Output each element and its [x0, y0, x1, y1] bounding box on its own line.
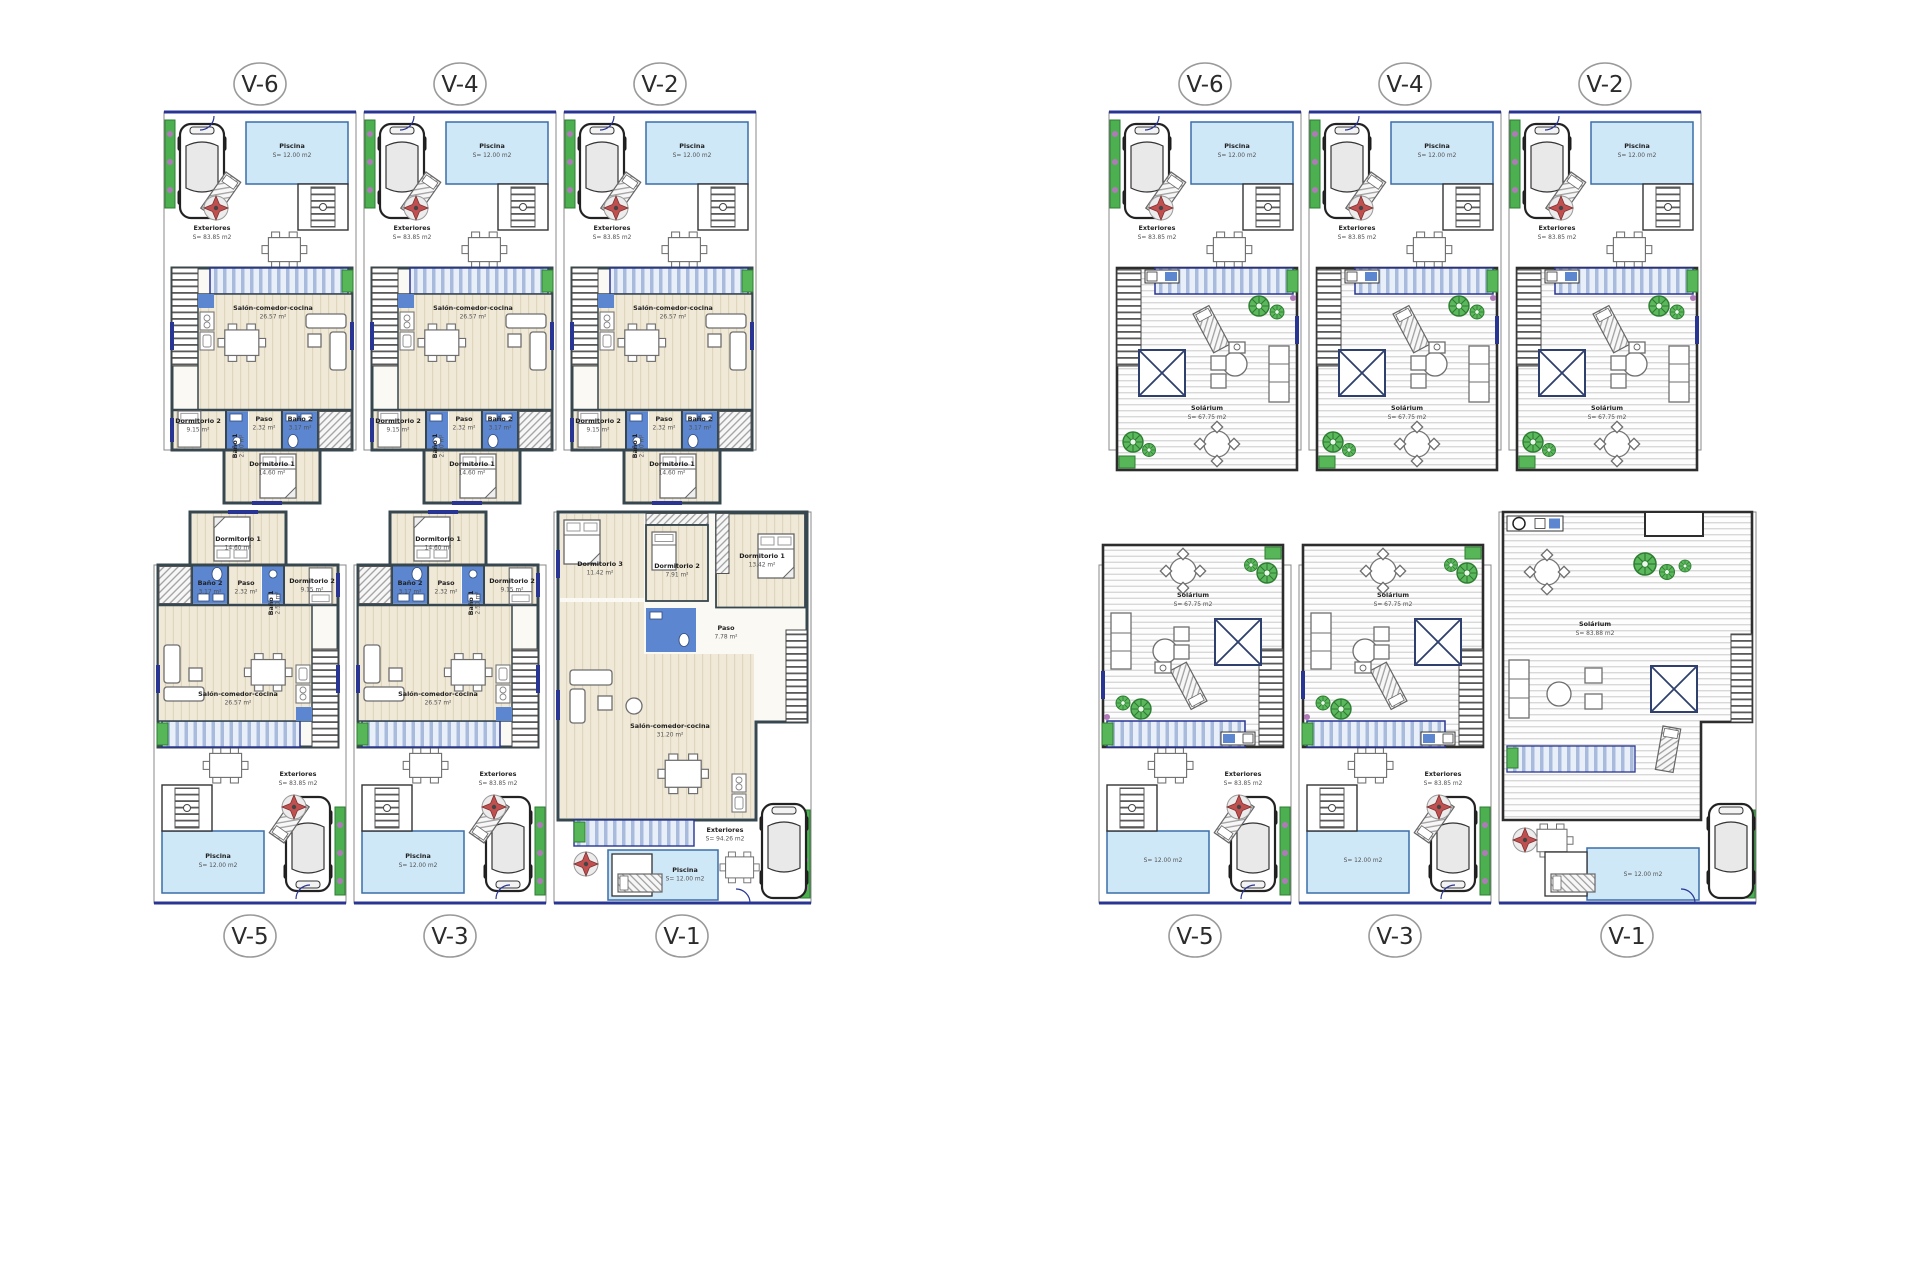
bath1-label: Baño 12.50 m²: [231, 434, 246, 459]
floorplan-drawing: PiscinaS= 12.00 m2 ExterioresS= 83.85 m2…: [0, 0, 1920, 1280]
ground-floor-panel: PiscinaS= 12.00 m2 ExterioresS= 83.85 m2…: [154, 63, 811, 957]
unit-v6-ground: PiscinaS= 12.00 m2 ExterioresS= 83.85 m2…: [164, 112, 356, 505]
villa-tag-v4-solarium: V-4: [1379, 63, 1431, 105]
pool-label: S= 12.00 m2: [1144, 858, 1183, 864]
unit-v3-ground: PiscinaS= 12.00 m2 ExterioresS= 83.85 m2…: [354, 510, 546, 903]
villa-tag-v6-solarium: V-6: [1179, 63, 1231, 105]
svg-text:V-4: V-4: [1386, 72, 1423, 98]
villa-tag-v3-solarium: V-3: [1369, 915, 1421, 957]
unit-v5-solarium: S= 12.00 m2 ExterioresS= 83.85 m2 Solári…: [1099, 545, 1291, 903]
svg-text:V-1: V-1: [663, 924, 700, 950]
bath1-label: Baño 12.50 m²: [467, 591, 482, 616]
villa-tag-v6-ground: V-6: [234, 63, 286, 105]
svg-text:V-6: V-6: [241, 72, 278, 98]
villa-tag-v1-ground: V-1: [656, 915, 708, 957]
villa-tag-v1-solarium: V-1: [1601, 915, 1653, 957]
svg-text:V-2: V-2: [1586, 72, 1623, 98]
unit-v1-ground: Dormitorio 311.42 m² Dormitorio 27.91 m²…: [554, 512, 811, 903]
villa-tag-v2-ground: V-2: [634, 63, 686, 105]
unit-v2-ground: PiscinaS= 12.00 m2 ExterioresS= 83.85 m2…: [564, 112, 756, 505]
unit-v6-solarium: PiscinaS= 12.00 m2 ExterioresS= 83.85 m2…: [1109, 112, 1301, 470]
solarium-panel: PiscinaS= 12.00 m2 ExterioresS= 83.85 m2…: [1099, 63, 1756, 957]
bath1-label: Baño 12.50 m²: [431, 434, 446, 459]
svg-text:V-3: V-3: [431, 924, 468, 950]
svg-text:V-1: V-1: [1608, 924, 1645, 950]
svg-text:V-4: V-4: [441, 72, 478, 98]
bath1-label: Baño 12.50 m²: [631, 434, 646, 459]
unit-v4-ground: PiscinaS= 12.00 m2 ExterioresS= 83.85 m2…: [364, 112, 556, 505]
pool-label: S= 12.00 m2: [1344, 858, 1383, 864]
svg-text:V-5: V-5: [1176, 924, 1213, 950]
villa-tag-v2-solarium: V-2: [1579, 63, 1631, 105]
svg-text:V-2: V-2: [641, 72, 678, 98]
unit-v1-solarium: SoláriumS= 83.88 m2 S= 12.00 m2: [1499, 512, 1756, 903]
pool-label: S= 12.00 m2: [1624, 872, 1663, 878]
bath1-label: Baño 12.50 m²: [267, 591, 282, 616]
unit-v5-ground: PiscinaS= 12.00 m2 ExterioresS= 83.85 m2…: [154, 510, 346, 903]
svg-text:V-5: V-5: [231, 924, 268, 950]
unit-v3-solarium: S= 12.00 m2 ExterioresS= 83.85 m2 Solári…: [1299, 545, 1491, 903]
unit-v2-solarium: PiscinaS= 12.00 m2 ExterioresS= 83.85 m2…: [1509, 112, 1701, 470]
svg-text:V-3: V-3: [1376, 924, 1413, 950]
floorplan-sheet: PiscinaS= 12.00 m2 ExterioresS= 83.85 m2…: [0, 0, 1920, 1280]
svg-text:V-6: V-6: [1186, 72, 1223, 98]
villa-tag-v3-ground: V-3: [424, 915, 476, 957]
villa-tag-v5-solarium: V-5: [1169, 915, 1221, 957]
villa-tag-v5-ground: V-5: [224, 915, 276, 957]
unit-v4-solarium: PiscinaS= 12.00 m2 ExterioresS= 83.85 m2…: [1309, 112, 1501, 470]
villa-tag-v4-ground: V-4: [434, 63, 486, 105]
